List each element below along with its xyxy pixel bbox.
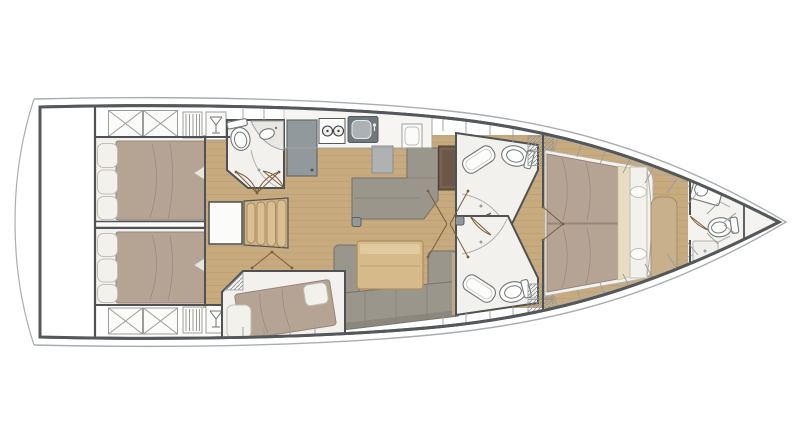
aft-cabin-starboard <box>95 228 205 305</box>
aft-head <box>227 118 284 188</box>
pillow <box>227 305 251 338</box>
stairs <box>244 198 288 248</box>
sheet-fold <box>618 166 630 280</box>
companionway-locker <box>209 202 242 244</box>
aft-cabin-port <box>95 137 205 225</box>
mast-step <box>352 218 361 227</box>
pillow <box>631 187 647 198</box>
stove <box>319 119 345 144</box>
aft-cabin-divider <box>95 222 205 228</box>
galley-sink <box>348 117 378 143</box>
interior <box>40 104 784 347</box>
shower-drain <box>258 169 261 172</box>
page <box>0 0 800 446</box>
deck-lockers-port <box>109 111 227 141</box>
deck-lockers-starboard <box>109 305 227 334</box>
fridge-handle <box>311 169 314 172</box>
headboard <box>630 167 647 278</box>
galley-cabinet <box>372 146 393 173</box>
yacht-floorplan <box>0 0 800 446</box>
pillows <box>98 144 118 220</box>
stern-garage <box>40 104 94 342</box>
mast-step <box>456 217 465 226</box>
double-berth <box>116 232 205 303</box>
transom-line <box>15 99 34 345</box>
saloon-dinette <box>334 241 463 331</box>
pillow <box>631 249 647 260</box>
pillows <box>98 234 118 303</box>
double-berth <box>116 141 205 220</box>
